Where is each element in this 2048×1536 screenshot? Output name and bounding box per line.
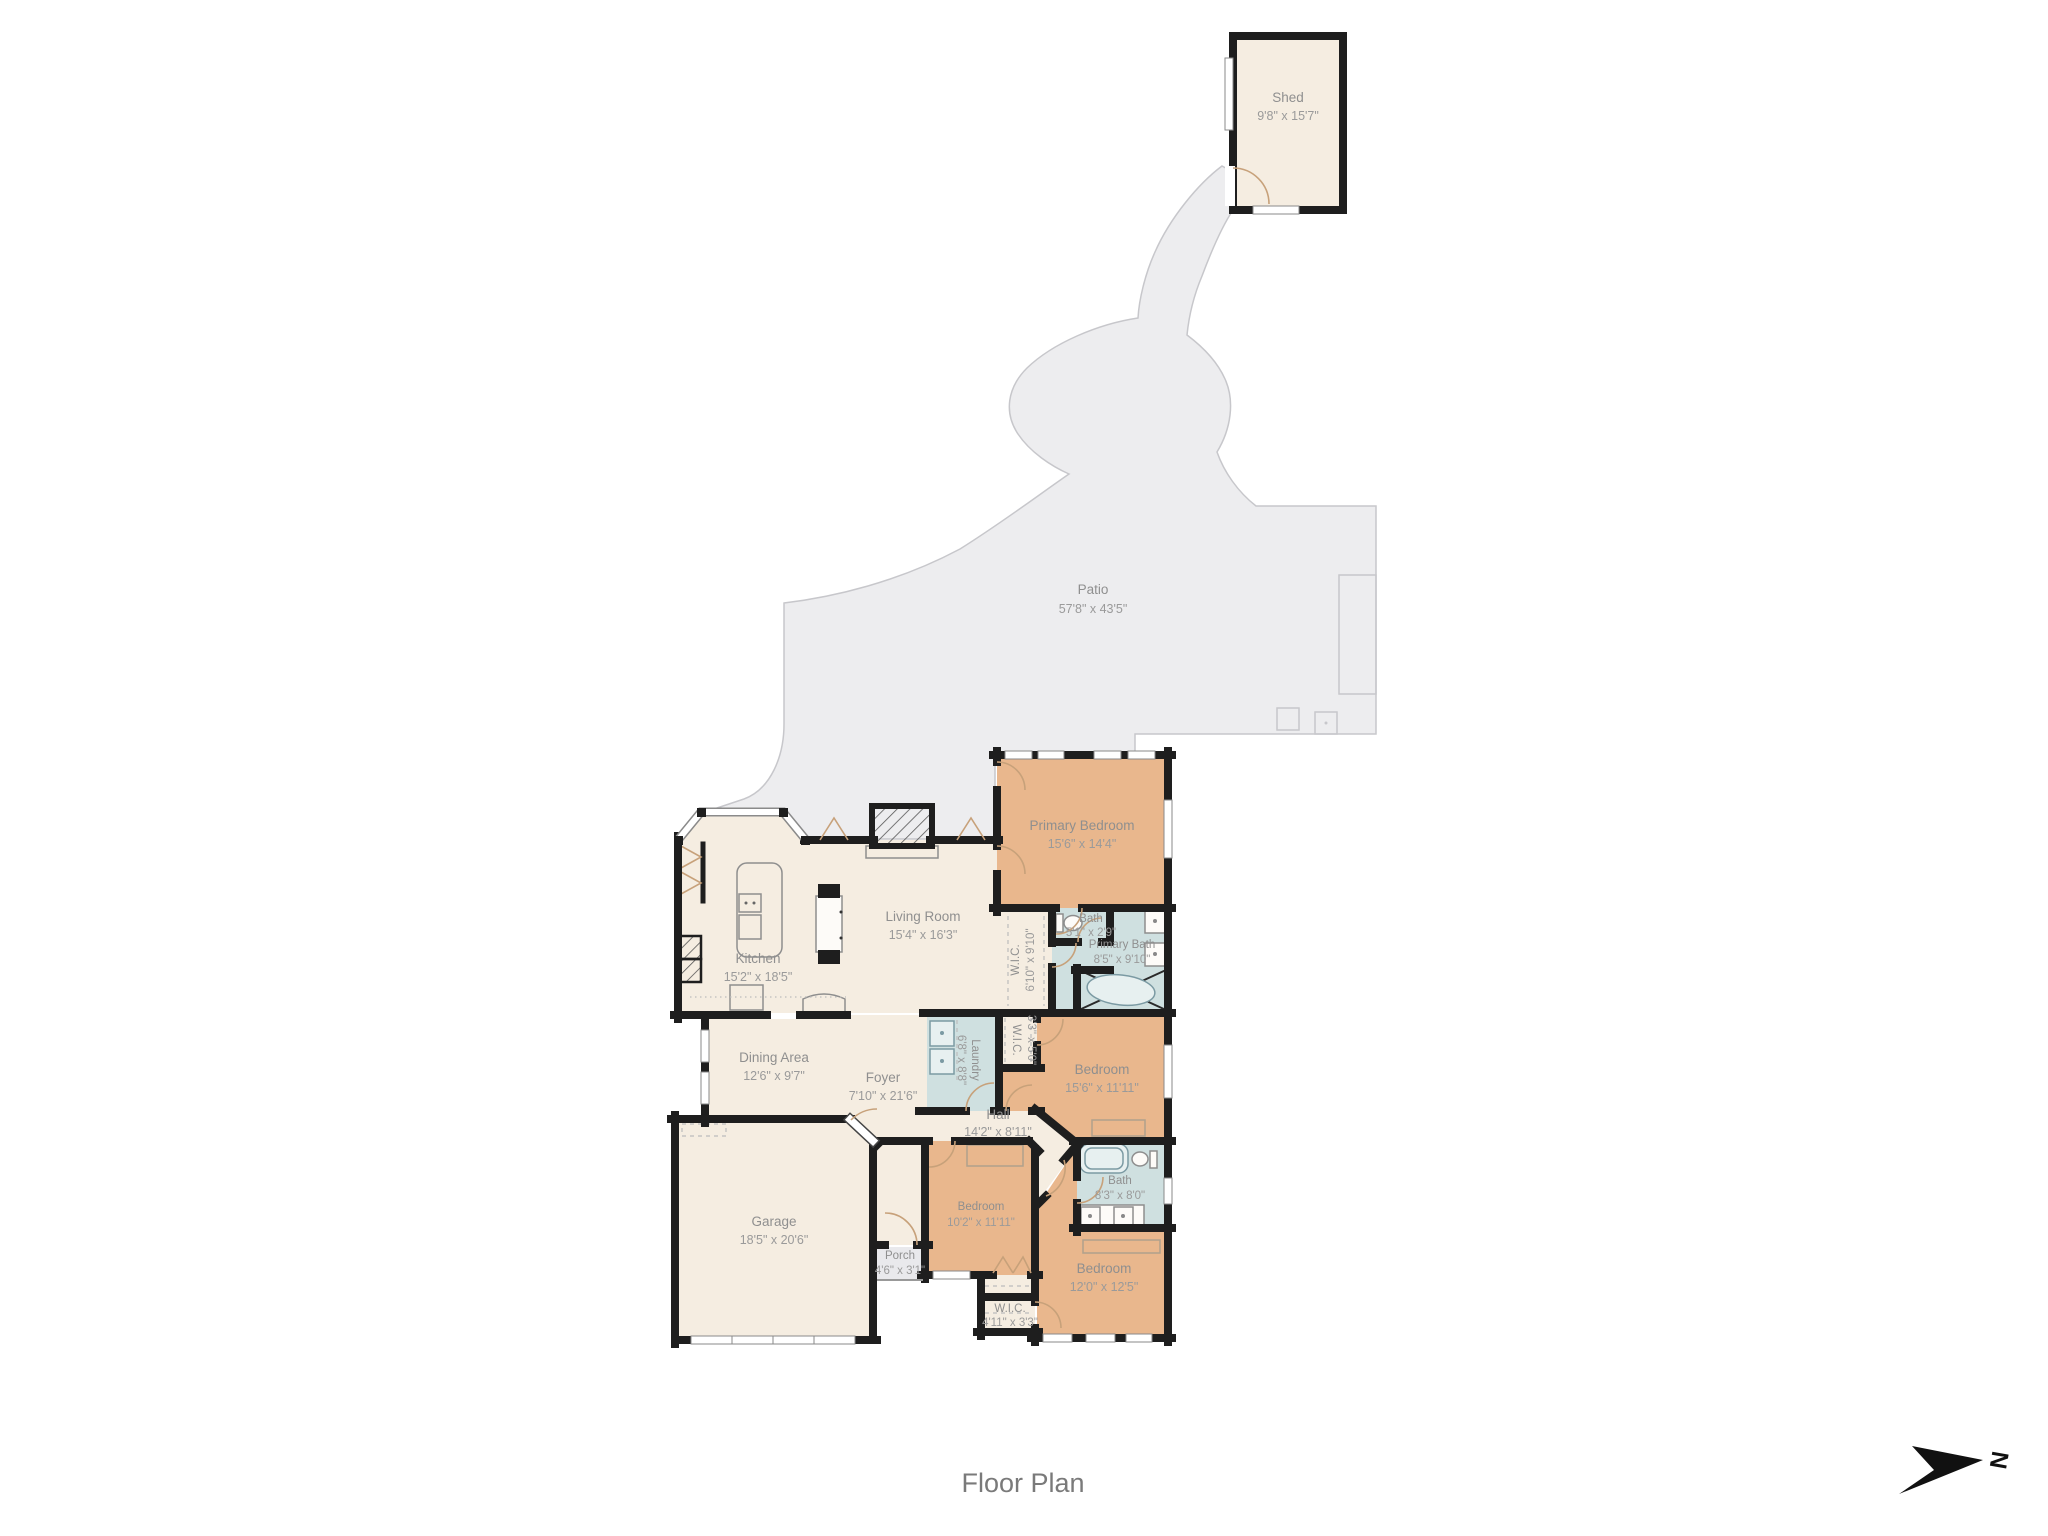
room-dims-kitchen: 15'2" x 18'5": [724, 970, 793, 984]
room-label-primary-wic: W.I.C.: [1010, 944, 1022, 975]
room-dims-patio: 57'8" x 43'5": [1059, 602, 1128, 616]
room-dims-porch: 4'6" x 3'1": [875, 1265, 925, 1277]
north-arrow-label: N: [1984, 1449, 2014, 1471]
media-unit: [816, 896, 842, 952]
bath2-toilet-bowl: [1132, 1152, 1148, 1166]
room-label-primary-bedroom: Primary Bedroom: [1029, 818, 1134, 833]
room-dims-primary-wic: 6'10" x 9'10": [1025, 928, 1037, 991]
room-dims-bath-2: 8'3" x 8'0": [1095, 1190, 1145, 1202]
floor-plan-canvas: Shed 9'8" x 15'7" Patio 57'8" x 43'5" Pr…: [0, 0, 2048, 1536]
room-label-living-room: Living Room: [885, 909, 960, 924]
room-shed: [1233, 40, 1343, 206]
room-dims-primary-bedroom: 15'6" x 14'4": [1048, 837, 1117, 851]
room-label-bedroom-1: Bedroom: [958, 1201, 1005, 1213]
room-label-bath-2: Bath: [1108, 1175, 1132, 1187]
page-title: Floor Plan: [961, 1468, 1084, 1498]
room-dims-living-room: 15'4" x 16'3": [889, 928, 958, 942]
room-dims-laundry: 6'8" x 8'8": [955, 1035, 967, 1085]
toilet-primary: [1056, 914, 1063, 932]
room-dims-bedroom-2: 15'6" x 11'11": [1065, 1081, 1139, 1095]
room-dims-foyer: 7'10" x 21'6": [849, 1089, 918, 1103]
patio-area: [702, 166, 1376, 839]
room-label-porch: Porch: [885, 1250, 915, 1262]
fireplace-icon: [872, 806, 932, 846]
room-label-kitchen: Kitchen: [735, 951, 780, 966]
room-dims-shed: 9'8" x 15'7": [1257, 109, 1319, 123]
room-dims-garage: 18'5" x 20'6": [740, 1233, 809, 1247]
room-dims-bedroom-wic: 4'11" x 3'3": [982, 1317, 1038, 1329]
room-label-water-closet: Bath: [1079, 913, 1103, 925]
room-dims-water-closet: 5'1" x 2'9": [1066, 927, 1116, 939]
room-label-bedroom-3: Bedroom: [1077, 1261, 1132, 1276]
bath2-toilet-tank: [1150, 1151, 1157, 1168]
room-label-dining-area: Dining Area: [739, 1050, 809, 1065]
room-label-shed: Shed: [1272, 90, 1304, 105]
room-label-hall: Hall: [986, 1107, 1009, 1122]
room-label-bedroom-2: Bedroom: [1075, 1062, 1130, 1077]
room-label-patio: Patio: [1078, 582, 1109, 597]
room-dims-bedroom-3: 12'0" x 12'5": [1070, 1280, 1139, 1294]
room-dims-dining-area: 12'6" x 9'7": [743, 1069, 805, 1083]
floor-plan-svg: Shed 9'8" x 15'7" Patio 57'8" x 43'5" Pr…: [0, 0, 2048, 1536]
north-arrow: N: [1899, 1446, 2013, 1494]
north-arrow-icon: [1899, 1446, 1983, 1494]
room-label-garage: Garage: [751, 1214, 796, 1229]
room-label-laundry: Laundry: [969, 1039, 981, 1081]
room-dims-hall-wic: 3'3" x 5'0": [1025, 1015, 1037, 1065]
room-label-hall-wic: W.I.C.: [1010, 1024, 1022, 1055]
room-dims-primary-bath: 8'5" x 9'10": [1094, 954, 1151, 966]
room-label-primary-bath: Primary Bath: [1089, 939, 1155, 951]
room-garage: [675, 1119, 875, 1340]
room-dims-hall: 14'2" x 8'11": [964, 1125, 1032, 1139]
room-label-bedroom-wic: W.I.C.: [994, 1303, 1025, 1315]
room-label-foyer: Foyer: [866, 1070, 901, 1085]
room-dims-bedroom-1: 10'2" x 11'11": [947, 1217, 1015, 1229]
